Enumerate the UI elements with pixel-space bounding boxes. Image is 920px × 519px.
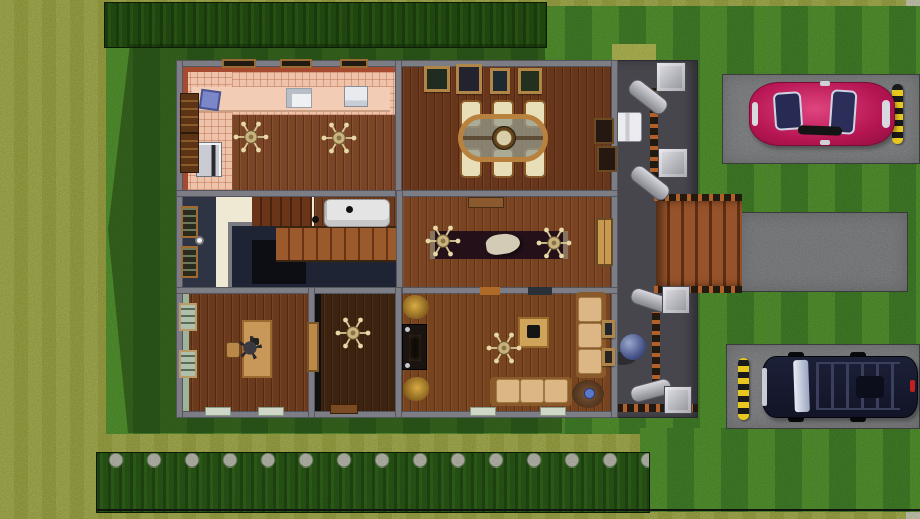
fireplace-hearth — [409, 335, 421, 361]
dining-wall-art[interactable] — [518, 68, 542, 94]
car-rear-trim — [752, 102, 758, 126]
deck-bench[interactable] — [614, 112, 642, 142]
ceiling-fan[interactable] — [423, 221, 463, 261]
ceiling-fan[interactable] — [333, 313, 373, 353]
alcove-bookcase[interactable] — [181, 246, 198, 278]
suv-taillight — [910, 380, 915, 392]
ceiling-fan[interactable] — [534, 223, 574, 263]
office-window[interactable] — [179, 350, 197, 378]
table-centerpiece-clock[interactable] — [492, 126, 516, 150]
three-seat-sofa[interactable] — [490, 377, 572, 406]
dining-wall-art[interactable] — [490, 68, 510, 94]
fire-tool — [405, 327, 410, 332]
dining-hutch[interactable] — [594, 118, 614, 144]
sofa-cushion — [544, 379, 568, 403]
coffee-table-item[interactable] — [527, 325, 540, 338]
car-front-trim — [882, 100, 890, 128]
navy-suv[interactable] — [758, 350, 920, 424]
console-table[interactable] — [468, 197, 504, 208]
porch-column[interactable] — [656, 62, 686, 92]
autumn-plant[interactable] — [403, 295, 429, 319]
dining-wall-art[interactable] — [424, 66, 450, 92]
kitchen-window[interactable] — [340, 59, 368, 68]
kitchen-bookshelf[interactable] — [180, 133, 199, 173]
window-sill — [470, 407, 496, 416]
kitchen-window[interactable] — [222, 59, 256, 68]
sofa-cushion — [578, 323, 602, 348]
wall-darkroom-living — [395, 287, 402, 418]
alcove-bookcase[interactable] — [181, 206, 198, 238]
wall-hall-entry — [396, 190, 403, 294]
window-sill — [540, 407, 566, 416]
office-window[interactable] — [179, 303, 197, 331]
floor-lamp[interactable] — [195, 236, 204, 245]
ceiling-fan[interactable] — [484, 328, 524, 368]
fireplace[interactable] — [402, 324, 427, 370]
suv-windshield — [793, 360, 810, 412]
suv-front-bumper — [762, 368, 767, 406]
curtain-mark — [528, 287, 552, 295]
car-mirror — [820, 81, 830, 86]
sofa-cushion — [520, 379, 544, 403]
front-double-door[interactable] — [596, 218, 613, 266]
car-body — [749, 82, 895, 146]
office-chair[interactable] — [238, 336, 262, 360]
deck-rail-right-lower — [652, 312, 660, 390]
newel-knob — [346, 206, 353, 213]
living-wall-art[interactable] — [602, 348, 615, 366]
stairwell-landing-dark — [306, 258, 396, 287]
office-stool[interactable] — [226, 342, 240, 358]
parking-stop-lower[interactable] — [738, 358, 749, 420]
window-sill — [258, 407, 284, 416]
kitchen-bookshelf[interactable] — [180, 93, 199, 133]
blue-sphere-decor[interactable] — [620, 334, 646, 360]
window-sill — [205, 407, 231, 416]
ceiling-fan[interactable] — [319, 118, 359, 158]
newel-knob — [312, 216, 319, 223]
ceiling-fan[interactable] — [231, 117, 271, 157]
kitchen-window[interactable] — [280, 59, 312, 68]
sofa-cushion — [578, 297, 602, 322]
floor-mat[interactable] — [330, 404, 358, 414]
dining-wall-art[interactable] — [456, 64, 482, 94]
fire-tool — [405, 363, 410, 368]
wood-door[interactable] — [307, 322, 319, 372]
porch-column[interactable] — [664, 386, 692, 414]
car-side-vent — [798, 125, 842, 136]
stove[interactable] — [196, 142, 222, 177]
curtain-mark — [480, 287, 500, 295]
kitchen-sink[interactable] — [286, 88, 312, 108]
living-wall-art[interactable] — [602, 320, 615, 338]
white-loveseat[interactable] — [324, 199, 390, 227]
autumn-plant[interactable] — [403, 377, 429, 401]
sofa-cushion — [496, 379, 520, 403]
recycling-bin[interactable] — [199, 89, 222, 112]
wall-kitchen-dining — [395, 60, 402, 197]
dishwasher[interactable] — [344, 86, 368, 107]
suv-cargo-box — [856, 376, 884, 398]
car-mirror — [820, 140, 830, 145]
upper-stair-flight[interactable] — [252, 197, 312, 226]
car-rear-glass — [773, 91, 804, 131]
porch-column[interactable] — [662, 286, 690, 314]
main-staircase[interactable] — [276, 226, 398, 262]
porch-column[interactable] — [658, 148, 688, 178]
game-viewport — [0, 0, 920, 519]
red-sports-car[interactable] — [746, 76, 896, 150]
blue-cushion[interactable] — [584, 388, 595, 399]
deck-steps[interactable] — [656, 201, 742, 286]
sofa-cushion — [578, 349, 602, 374]
dining-hutch[interactable] — [597, 146, 617, 172]
